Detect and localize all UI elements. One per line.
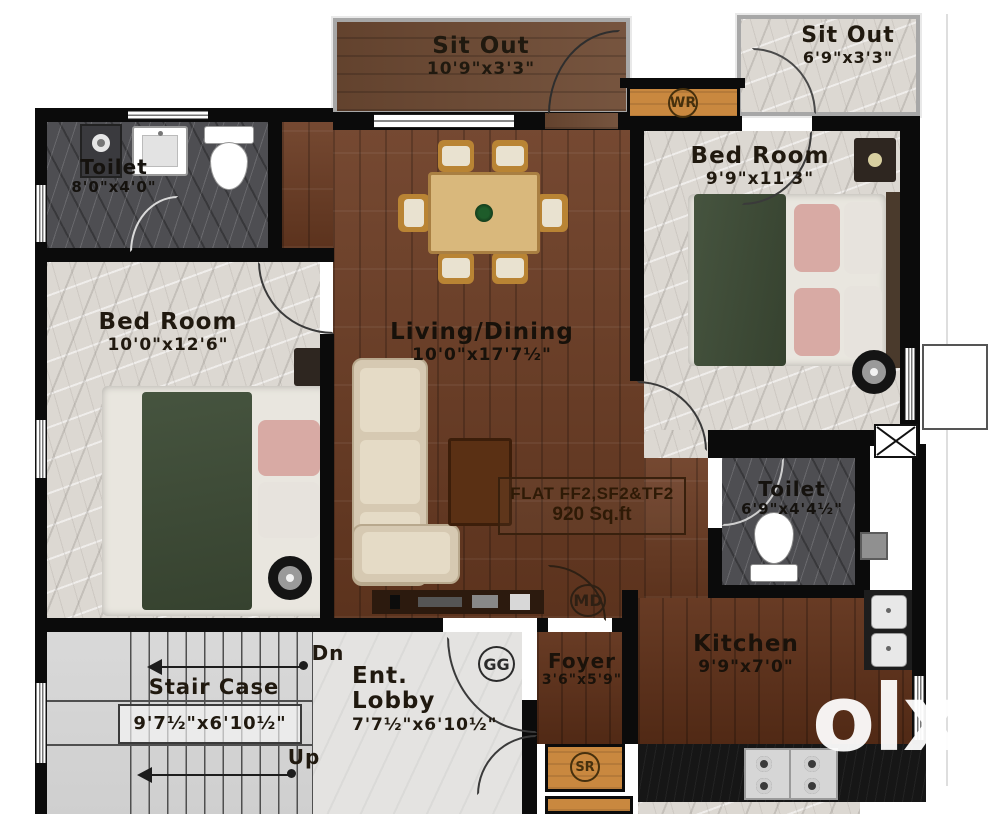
bed-right [688,192,900,368]
wall [268,108,282,262]
washbasin [860,532,888,560]
dining-chair [438,140,474,172]
living-strip-floor [282,122,333,248]
dining-chair [536,194,568,232]
olx-watermark: olx INDIA [812,678,997,774]
window [35,185,47,242]
bed-pillow [844,286,882,358]
stairs-down-label: Dn [312,642,345,664]
sit-out-door-gap [545,113,618,129]
dining-chair [492,252,528,284]
bed-pillow [794,288,840,356]
stairs-up-label: Up [288,746,321,768]
bed-pillow [844,202,882,274]
wall [35,248,334,262]
shaft-duct [874,424,918,458]
room-label-sit-out-right: Sit Out6'9"x3'3" [801,24,894,67]
room-label-bedroom-right: Bed Room9'9"x11'3" [691,144,830,190]
arrow-dot [299,661,308,670]
room-label-foyer: Foyer3'6"x5'9" [542,650,622,689]
room-label-kitchen: Kitchen9'9"x7'0" [693,632,799,678]
room-label-toilet-right: Toilet6'9"x4'4½" [741,478,843,518]
room-label-ent-lobby: Ent. Lobby 7'7½"x6'10½" [352,664,497,735]
window [35,420,47,478]
wall [320,334,334,632]
window [128,110,208,120]
arrow-head-icon [137,767,152,783]
marker-gg: GG [478,646,515,682]
wall [855,458,870,590]
bed-pillow [258,420,320,476]
room-label-stair-case: Stair Case [149,676,280,699]
floor-plan: Dn Up Stair Case 9'7½"x6'10½" Sit Out10'… [0,0,1000,814]
stairs-up-arrow [152,774,292,776]
stairs-landing-line [47,700,312,702]
arrow-dot [287,769,296,778]
wall [708,444,722,458]
room-label-sit-out-top: Sit Out10'9"x3'3" [427,34,535,80]
room-label-toilet-top: Toilet8'0"x4'0" [71,156,156,196]
olx-logo: olx [812,678,997,761]
bed-pillow [794,204,840,272]
stairs-landing-line [47,744,312,746]
bed-pillow [258,482,320,538]
marker-md: MD [570,584,606,617]
flat-info-box: FLAT FF2,SF2&TF2 920 Sq.ft [498,477,686,535]
dining-chair [492,140,528,172]
sofa-chaise [352,524,460,584]
stairs-down-arrow [162,666,304,668]
bed-blanket [694,194,786,366]
rail-cap [359,112,374,130]
bed-blanket [142,392,252,610]
dining-table [428,172,540,254]
wc-fixture [204,126,252,190]
kitchen-bottom-strip [638,802,860,814]
marker-wr: WR [668,88,698,118]
wall [708,585,870,598]
balcony-rail [373,114,515,128]
wall [708,528,722,590]
room-label-bedroom-left: Bed Room10'0"x12'6" [99,310,238,356]
room-label-living-dining: Living/Dining10'0"x17'7½" [390,320,574,366]
dining-chair [398,194,430,232]
wall [630,116,742,131]
rail-cap [514,112,529,130]
arrow-head-icon [147,659,162,675]
kitchen-sink [864,590,912,670]
dining-chair [438,252,474,284]
orange-strip-bottom [545,796,633,814]
window [35,683,47,763]
wall [622,590,638,744]
wall [35,618,443,632]
table-plant [475,204,493,222]
ceiling-fan [268,556,312,600]
nightstand [854,138,896,182]
ceiling-fan [852,350,896,394]
wall [630,131,644,381]
wall [620,78,745,88]
wall [812,116,920,131]
wc-fixture [750,512,796,582]
wall [537,618,548,632]
wall-projection [922,344,988,430]
stair-dims-box: 9'7½"x6'10½" [118,704,302,744]
tv-console [372,590,544,614]
window [904,348,916,420]
wall [722,444,870,458]
marker-sr: SR [570,752,600,782]
